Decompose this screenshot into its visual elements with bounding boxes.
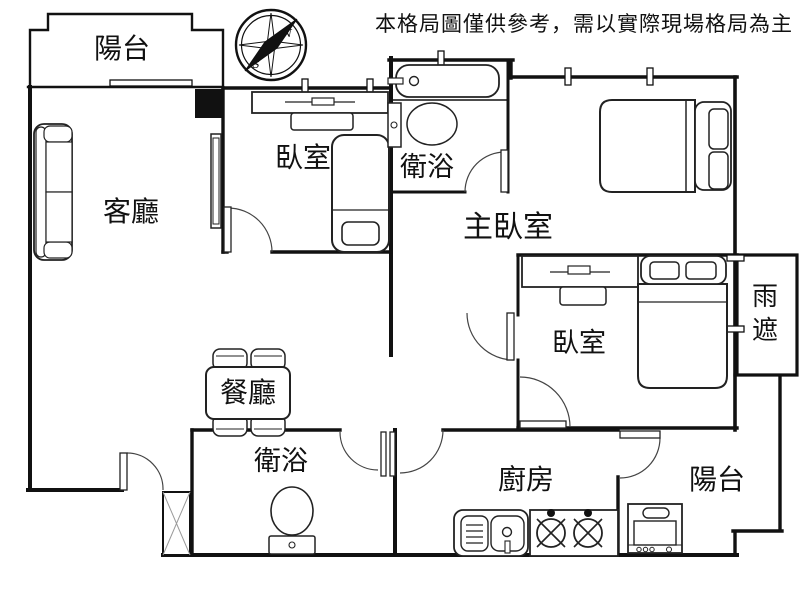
window-tick [727,326,744,332]
entry-door-leaf [120,453,127,490]
label-rain-shelter-char2: 遮 [752,316,778,346]
label-master-bedroom: 主臥室 [463,210,553,245]
stove [530,509,618,556]
bedroom1-desk [252,92,388,130]
pillow [709,109,728,149]
label-bedroom-top: 臥室 [275,141,331,174]
faucet-icon [503,528,512,537]
label-bathroom-bottom: 衛浴 [254,446,308,477]
toilet-top [388,103,457,147]
compass: N S [236,10,306,80]
sliding-window-panel [110,80,192,86]
tv-cabinet [211,134,221,228]
door-jamb [381,432,386,476]
bedroom2-kitchen-door-leaf [520,421,566,428]
bedroom2-chair [560,287,606,305]
window-tick [647,68,653,85]
window-tick [565,68,571,85]
door-jamb [390,432,395,476]
bedroom1-door-arc [228,208,272,252]
pillow [709,152,728,189]
label-rain-shelter-char1: 雨 [752,282,778,312]
bathroom1-door-leaf [501,150,508,192]
sofa [34,124,72,260]
pillar [195,89,223,118]
pillow [686,262,716,279]
knob-dot [584,509,592,517]
label-kitchen: 廚房 [498,463,554,496]
entry-door-arc [127,453,163,490]
disclaimer-text: 本格局圖僅供參考，需以實際現場格局為主 [375,12,793,36]
bedroom1-door-leaf [224,207,231,252]
label-living-room: 客廳 [103,195,159,228]
bathroom1-door-arc [465,152,505,192]
window-tick [727,255,744,261]
bathroom2-door-arc [340,432,378,470]
kitchen-balcony-door-arc [620,438,660,478]
pillow [342,222,379,245]
kitchen-balcony-door-leaf [620,431,660,438]
floor-plan: N S 本格局圖僅供參考，需以實際現場格局為主 陽台 客廳 臥室 衛浴 主臥室 … [0,0,800,600]
knob-dot [547,509,555,517]
label-bathroom-top: 衛浴 [400,152,454,183]
kitchen-sink [454,510,528,556]
compass-south-label: S [252,58,260,71]
bathtub [388,65,499,97]
floor-plan-canvas: N S 本格局圖僅供參考，需以實際現場格局為主 陽台 客廳 臥室 衛浴 主臥室 … [0,0,800,600]
bedroom1-chair [291,113,353,130]
washing-machine [628,504,682,553]
bedroom2-bed [638,256,727,388]
duct-shaft [163,492,190,555]
bedroom2-door-leaf [507,313,514,360]
label-balcony-bottom: 陽台 [689,463,745,496]
label-bedroom-right: 臥室 [552,328,606,359]
toilet-bottom [269,487,315,554]
compass-north-label: N [281,27,292,40]
master-bed [600,100,731,192]
rain-shelter-walls [735,255,797,375]
label-balcony-top: 陽台 [94,32,150,65]
bedroom1-bed [332,135,389,252]
bedroom2-kitchen-door-arc [520,377,570,427]
bedroom2-desk [522,256,638,305]
label-dining-room: 餐廳 [220,376,276,409]
hall-kitchen-door-arc [400,430,443,473]
pillow [650,262,679,279]
